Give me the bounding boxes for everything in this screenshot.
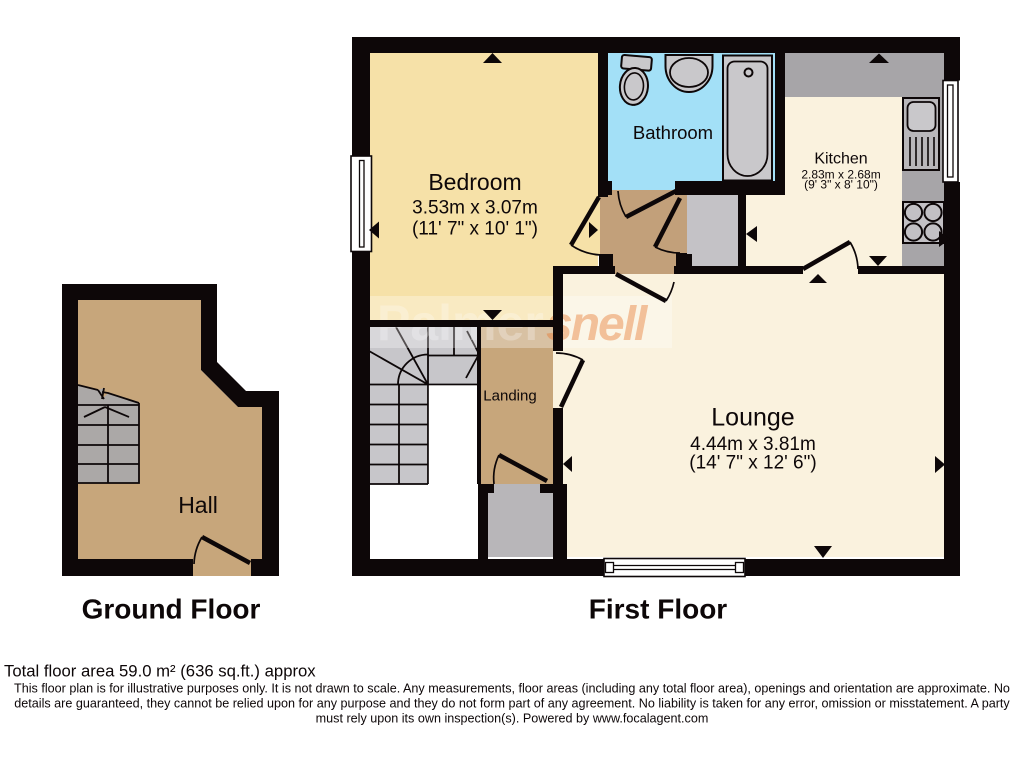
- svg-text:(14' 7" x 12' 6"): (14' 7" x 12' 6"): [689, 453, 816, 474]
- svg-text:Bedroom: Bedroom: [428, 169, 521, 195]
- svg-text:Ground Floor: Ground Floor: [82, 594, 261, 625]
- svg-text:details are guaranteed, they c: details are guaranteed, they cannot be r…: [14, 697, 1010, 711]
- svg-text:Kitchen: Kitchen: [814, 151, 867, 168]
- svg-text:Landing: Landing: [483, 388, 536, 405]
- svg-text:(9' 3" x 8' 10"): (9' 3" x 8' 10"): [804, 178, 878, 192]
- svg-text:Lounge: Lounge: [711, 404, 794, 432]
- svg-text:Total floor area 59.0 m² (636: Total floor area 59.0 m² (636 sq.ft.) ap…: [4, 662, 316, 681]
- svg-text:must rely upon its own inspect: must rely upon its own inspection(s). Po…: [316, 712, 709, 726]
- svg-text:(11' 7" x 10' 1"): (11' 7" x 10' 1"): [412, 219, 538, 240]
- svg-text:Hall: Hall: [178, 492, 218, 518]
- svg-text:3.53m x 3.07m: 3.53m x 3.07m: [412, 198, 538, 219]
- svg-text:Bathroom: Bathroom: [633, 122, 713, 143]
- svg-text:This floor plan is for illustr: This floor plan is for illustrative purp…: [14, 682, 1010, 696]
- svg-text:First Floor: First Floor: [589, 594, 728, 625]
